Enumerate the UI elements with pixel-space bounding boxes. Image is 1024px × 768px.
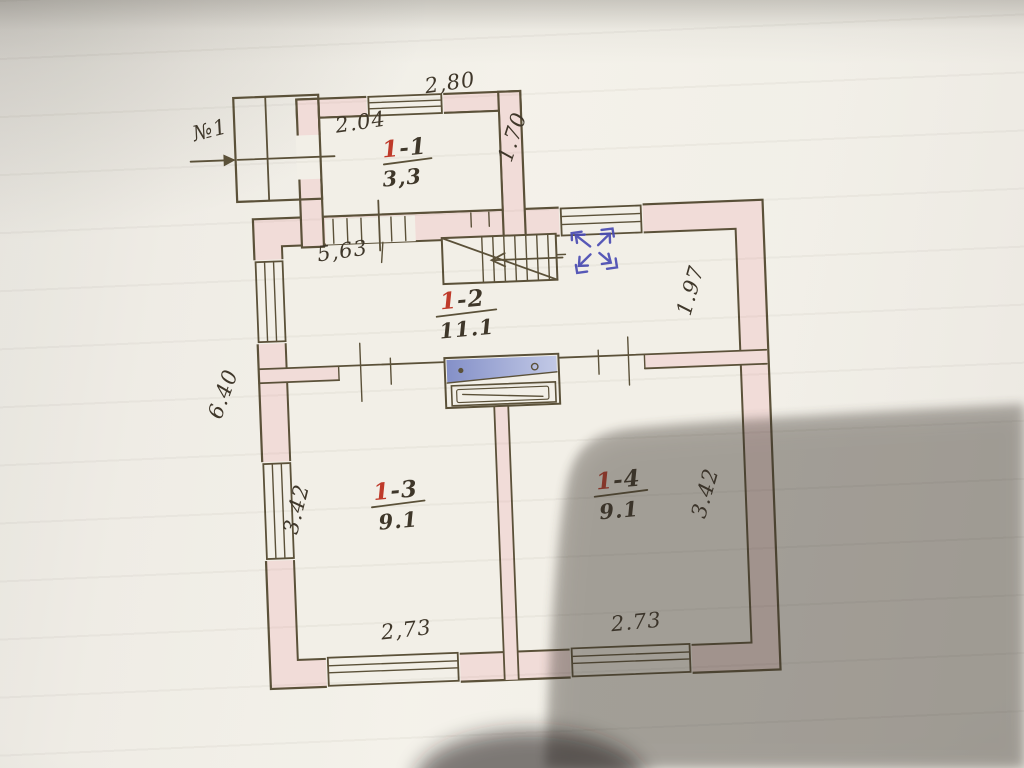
stairs-symbol [442, 234, 564, 285]
door-tick [598, 350, 599, 374]
entry-label: №1 [189, 114, 230, 146]
photo-of-floor-plan: №1 [0, 0, 1024, 768]
left-wall-window-1 [252, 259, 287, 344]
room-area-1-2: 11.1 [438, 314, 495, 344]
entrance-arrow [190, 154, 235, 168]
porch-divider [265, 97, 269, 201]
bottom-wall-window-1 [326, 651, 461, 689]
door-tick [390, 358, 391, 384]
dim-left-side: 6.40 [203, 366, 243, 422]
floor-plan-canvas: №1 [0, 0, 1024, 768]
room-area-1-1: 3,3 [381, 163, 423, 191]
stove-symbol [444, 354, 560, 408]
room-area-1-3: 9.1 [377, 506, 419, 534]
